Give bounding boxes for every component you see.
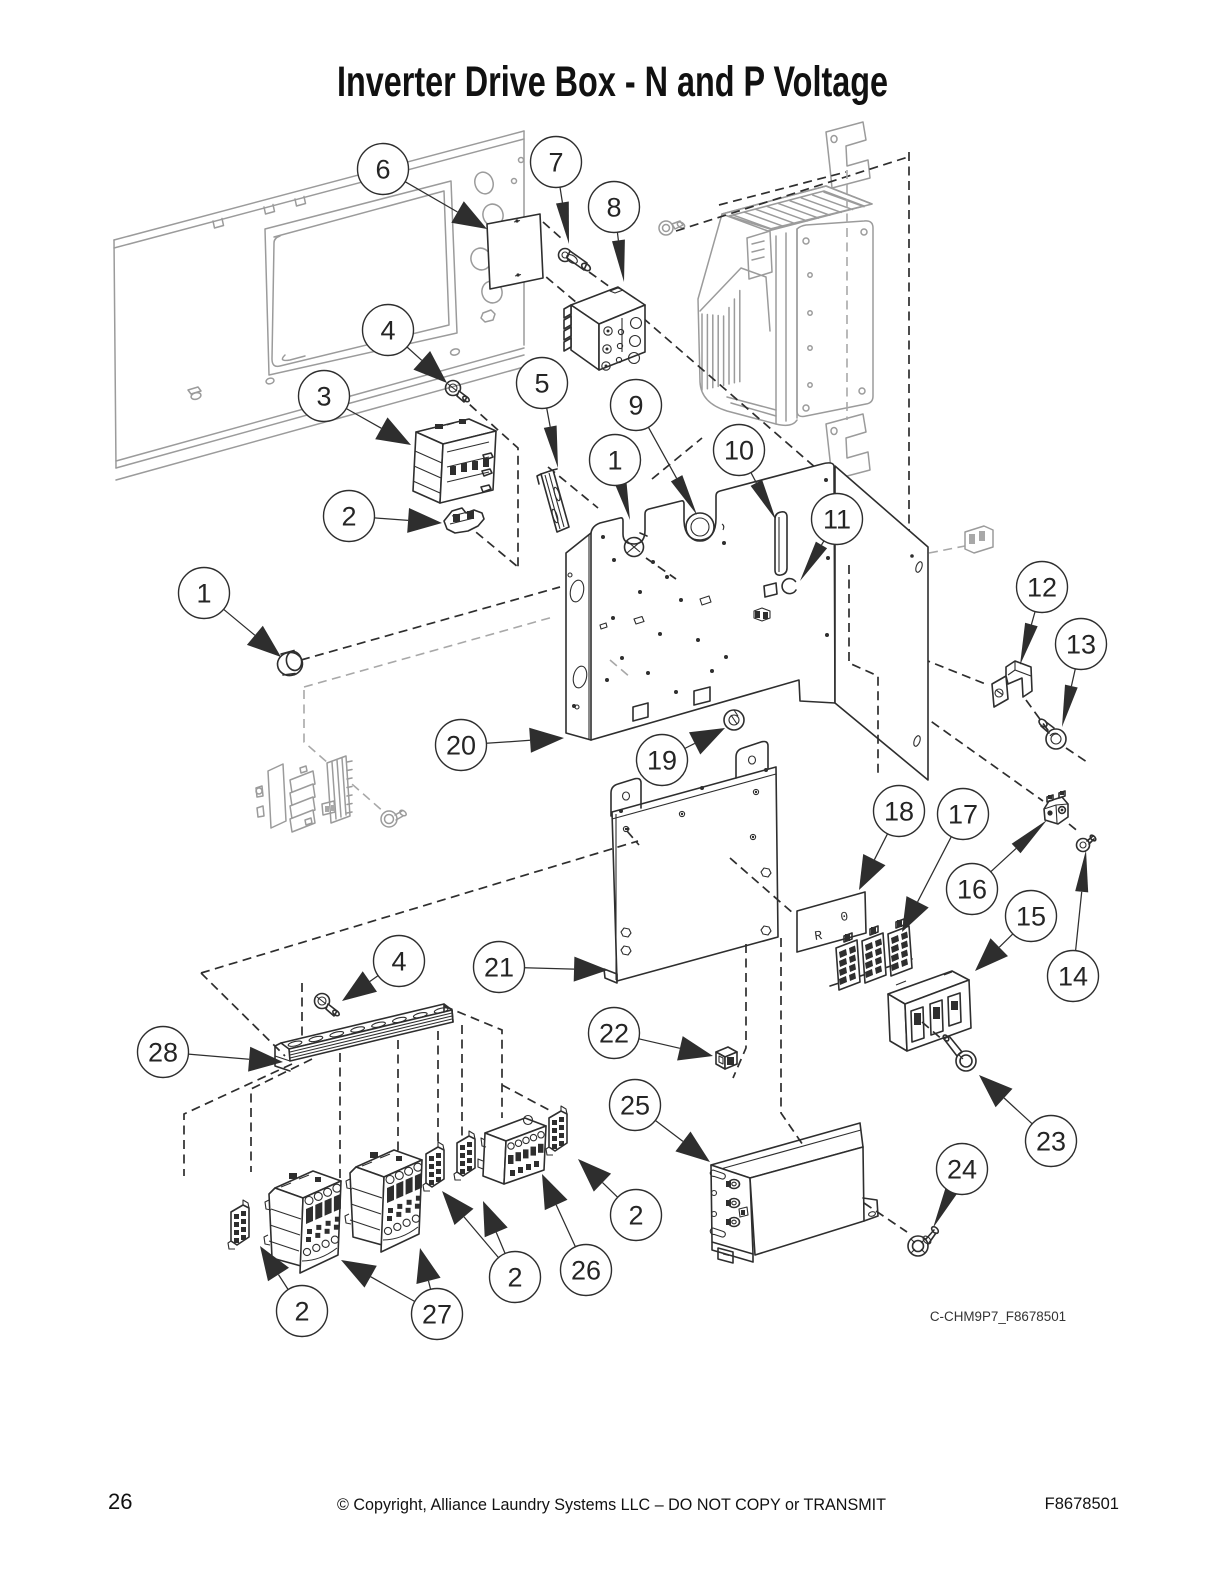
svg-text:5: 5 [534,369,549,399]
svg-text:28: 28 [148,1038,178,1068]
svg-text:7: 7 [548,148,563,178]
svg-text:22: 22 [599,1019,629,1049]
svg-text:26: 26 [108,1489,132,1514]
svg-text:15: 15 [1016,902,1046,932]
svg-text:17: 17 [948,800,978,830]
svg-text:18: 18 [884,797,914,827]
svg-text:10: 10 [724,436,754,466]
svg-text:27: 27 [422,1300,452,1330]
svg-text:1: 1 [607,446,622,476]
svg-text:4: 4 [391,947,406,977]
svg-text:20: 20 [446,731,476,761]
svg-text:1: 1 [196,579,211,609]
svg-text:2: 2 [628,1201,643,1231]
svg-text:6: 6 [375,155,390,185]
svg-text:12: 12 [1027,573,1057,603]
svg-text:2: 2 [294,1297,309,1327]
svg-text:19: 19 [647,746,677,776]
svg-text:11: 11 [823,505,851,535]
svg-text:3: 3 [316,382,331,412]
svg-text:24: 24 [947,1155,977,1185]
svg-text:2: 2 [341,502,356,532]
svg-text:2: 2 [507,1263,522,1293]
svg-text:13: 13 [1066,630,1096,660]
svg-text:21: 21 [484,953,514,983]
svg-text:14: 14 [1058,962,1088,992]
svg-text:8: 8 [606,193,621,223]
svg-text:26: 26 [571,1256,601,1286]
svg-text:23: 23 [1036,1127,1066,1157]
svg-text:C-CHM9P7_F8678501: C-CHM9P7_F8678501 [930,1309,1066,1324]
svg-text:F8678501: F8678501 [1045,1495,1119,1513]
svg-text:4: 4 [380,316,395,346]
svg-text:© Copyright, Alliance Laundry: © Copyright, Alliance Laundry Systems LL… [337,1496,886,1514]
svg-text:16: 16 [957,875,987,905]
svg-text:Inverter Drive Box - N and P V: Inverter Drive Box - N and P Voltage [337,58,888,106]
svg-text:9: 9 [628,391,643,421]
svg-text:25: 25 [620,1091,650,1121]
